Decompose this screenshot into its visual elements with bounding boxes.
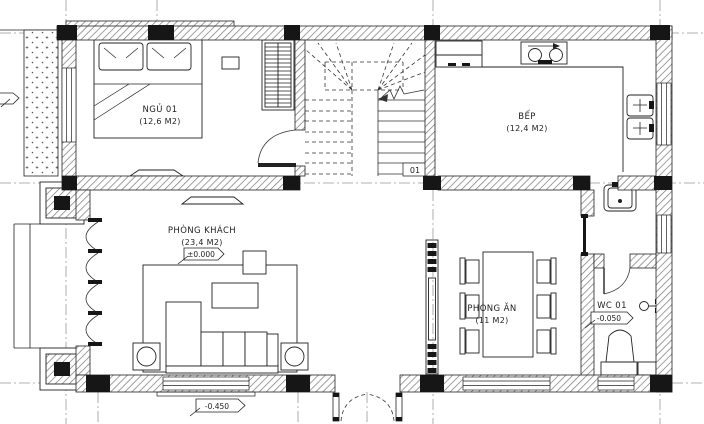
living-label: PHÒNG KHÁCH	[168, 224, 236, 236]
wall-mid	[62, 176, 300, 190]
column	[650, 25, 670, 40]
bedroom-door	[258, 130, 296, 167]
side-table	[281, 343, 308, 370]
toilet	[601, 330, 637, 375]
living-area: (23,4 M2)	[181, 238, 222, 247]
floor-plan-drawing: 01	[0, 0, 704, 424]
vestibule-door-leaf	[581, 214, 588, 256]
wc-elevation: -0.050	[597, 314, 621, 323]
column	[573, 176, 590, 190]
column	[148, 25, 174, 40]
living-elevation-flag: ±0.000	[178, 248, 224, 264]
column	[62, 176, 77, 190]
column	[650, 375, 672, 392]
porch-slab	[24, 30, 58, 176]
window-dining-south	[463, 377, 550, 390]
fridge	[436, 41, 482, 67]
bedroom-label: NGỦ 01	[142, 103, 177, 115]
kitchen-sink	[627, 95, 654, 139]
column	[86, 375, 110, 392]
kitchen-label: BẾP	[518, 110, 536, 122]
coffee-table	[212, 283, 258, 308]
window-vestibule-east	[657, 215, 671, 253]
stair-number: 01	[410, 166, 420, 175]
stove	[521, 42, 567, 64]
column	[283, 176, 300, 190]
sofa	[166, 302, 278, 373]
kitchen-area: (12,4 M2)	[506, 124, 547, 133]
wall-stair-east	[425, 40, 435, 176]
living-furniture	[130, 170, 308, 373]
floor-plan: 01	[0, 0, 704, 424]
bedroom-area: (12,6 M2)	[139, 117, 180, 126]
window-bedroom-west	[62, 68, 76, 142]
partition-screen	[426, 240, 438, 374]
pillow	[99, 43, 143, 70]
side-cabinet	[243, 251, 266, 274]
dining-area: (11 M2)	[475, 316, 508, 325]
pillow	[147, 43, 191, 70]
folding-door	[86, 218, 102, 346]
wall-right	[656, 26, 672, 392]
tv-console	[182, 197, 243, 204]
wall-living-west	[76, 190, 90, 220]
wall-kitchen-south	[438, 176, 590, 190]
wc-ledge	[638, 362, 656, 375]
bedroom-furniture	[94, 38, 294, 138]
dining-label: PHÒNG ĂN	[467, 302, 516, 314]
wall-niche	[222, 57, 239, 69]
wc-door	[604, 268, 630, 294]
window-wc-south	[598, 377, 634, 390]
column	[420, 375, 444, 392]
column	[654, 176, 672, 190]
stair-flight-up	[305, 43, 425, 176]
wardrobe	[262, 40, 294, 110]
tv-console	[130, 170, 183, 176]
elevation-marker-left	[0, 93, 19, 104]
column	[424, 25, 440, 40]
living-elevation: ±0.000	[187, 250, 215, 259]
entry-elevation: -0.450	[205, 402, 229, 411]
entry-elevation-flag: -0.450	[190, 399, 245, 416]
wall-wc-north	[594, 254, 604, 268]
side-table	[133, 343, 160, 370]
staircase: 01	[305, 43, 427, 176]
column	[284, 25, 300, 40]
wc-fittings	[601, 182, 661, 375]
entrance-double-door	[333, 393, 402, 421]
window-kitchen-east	[657, 83, 671, 145]
window-living-south	[157, 377, 255, 396]
column	[57, 25, 77, 40]
wall-dining-east	[581, 190, 594, 216]
column	[423, 176, 441, 190]
wc-label: WC 01	[597, 301, 627, 311]
column	[286, 375, 310, 392]
kitchen-fittings	[436, 41, 654, 172]
wall-stair-west	[295, 40, 305, 130]
